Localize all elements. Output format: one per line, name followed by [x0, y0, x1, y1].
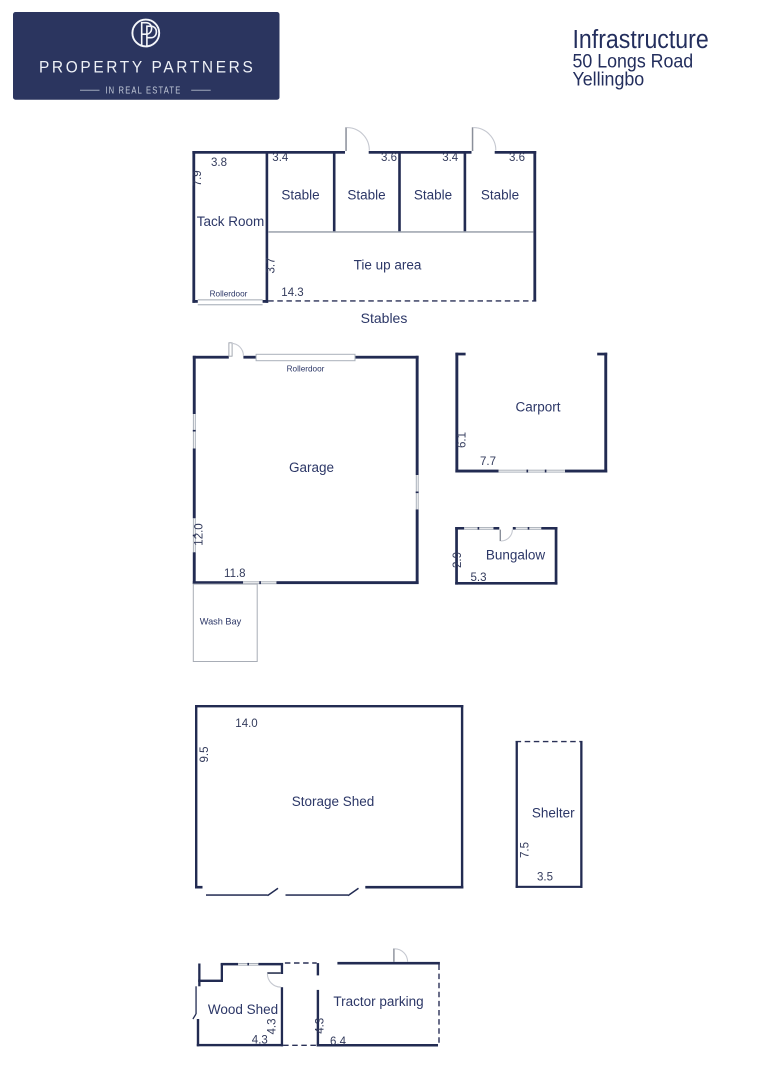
svg-text:Garage: Garage — [289, 460, 334, 475]
svg-text:3.4: 3.4 — [442, 152, 459, 164]
svg-text:IN REAL ESTATE: IN REAL ESTATE — [105, 85, 181, 96]
svg-text:Infrastructure: Infrastructure — [573, 26, 709, 54]
svg-text:9.5: 9.5 — [199, 747, 211, 763]
svg-text:Tie up area: Tie up area — [354, 258, 422, 273]
svg-text:4.3: 4.3 — [252, 1035, 268, 1047]
svg-text:4.3: 4.3 — [315, 1018, 327, 1034]
svg-text:PROPERTY PARTNERS: PROPERTY PARTNERS — [39, 58, 256, 76]
svg-text:Yellingbo: Yellingbo — [573, 70, 645, 91]
svg-text:6.1: 6.1 — [457, 432, 469, 448]
svg-text:3.7: 3.7 — [266, 258, 278, 274]
svg-text:Wash Bay: Wash Bay — [200, 616, 242, 626]
svg-text:7.9: 7.9 — [192, 170, 204, 186]
svg-text:Rollerdoor: Rollerdoor — [210, 289, 248, 298]
svg-text:Storage Shed: Storage Shed — [292, 794, 375, 809]
svg-text:14.0: 14.0 — [235, 718, 257, 730]
svg-text:14.3: 14.3 — [281, 287, 303, 299]
svg-text:Stables: Stables — [361, 310, 408, 326]
svg-text:3.5: 3.5 — [537, 872, 553, 884]
svg-text:Carport: Carport — [515, 400, 560, 415]
svg-text:7.5: 7.5 — [519, 842, 531, 858]
svg-text:Shelter: Shelter — [532, 805, 575, 820]
svg-text:3.6: 3.6 — [509, 152, 525, 164]
svg-text:2.9: 2.9 — [452, 552, 464, 568]
svg-text:Stable: Stable — [414, 188, 452, 203]
svg-text:Stable: Stable — [347, 188, 385, 203]
svg-text:3.8: 3.8 — [211, 157, 227, 169]
svg-text:Rollerdoor: Rollerdoor — [287, 365, 325, 374]
svg-text:Wood Shed: Wood Shed — [208, 1002, 278, 1017]
svg-text:3.6: 3.6 — [381, 152, 397, 164]
svg-text:Bungalow: Bungalow — [486, 547, 546, 562]
svg-text:4.3: 4.3 — [266, 1019, 278, 1035]
svg-text:Stable: Stable — [481, 188, 519, 203]
svg-text:11.8: 11.8 — [224, 568, 246, 580]
svg-text:12.0: 12.0 — [194, 523, 206, 545]
svg-text:5.3: 5.3 — [471, 572, 487, 584]
svg-text:6.4: 6.4 — [330, 1036, 347, 1048]
svg-text:3.4: 3.4 — [272, 152, 289, 164]
svg-text:Tractor parking: Tractor parking — [333, 994, 423, 1009]
svg-text:Stable: Stable — [281, 188, 319, 203]
svg-text:7.7: 7.7 — [480, 456, 496, 468]
svg-text:Tack Room: Tack Room — [197, 214, 265, 229]
